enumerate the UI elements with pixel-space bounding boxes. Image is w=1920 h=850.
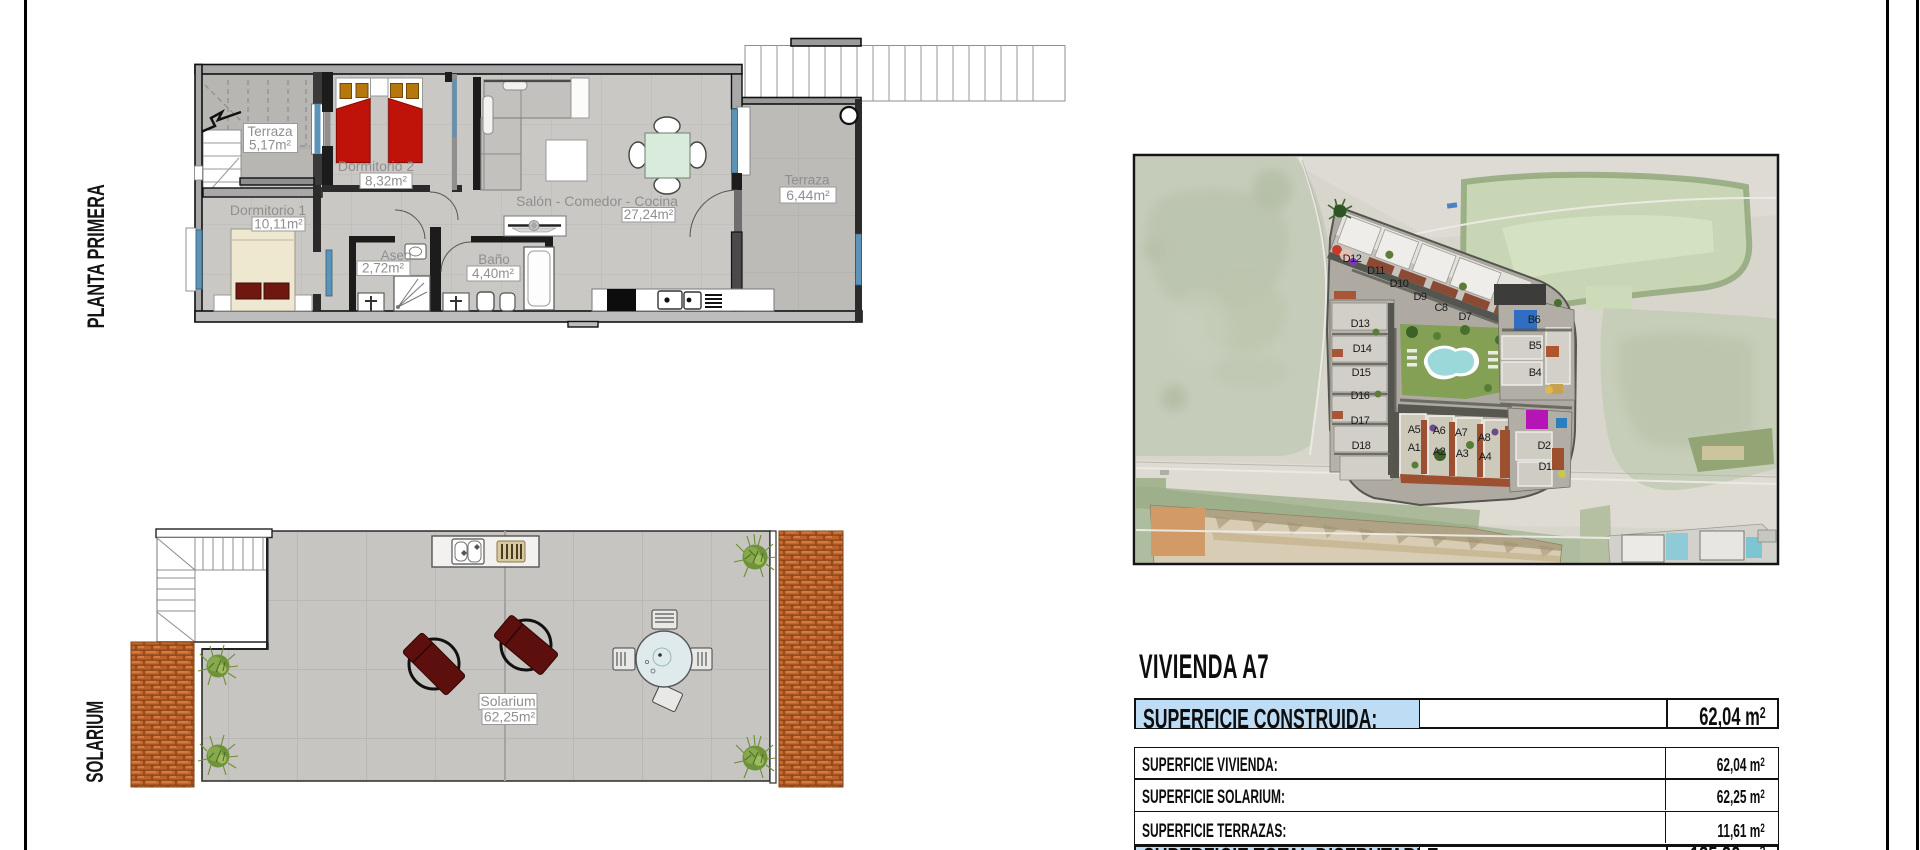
svg-text:D13: D13: [1351, 318, 1370, 330]
svg-text:A5: A5: [1408, 424, 1421, 436]
svg-text:A1: A1: [1408, 442, 1421, 454]
svg-text:D17: D17: [1351, 415, 1370, 427]
svg-text:B6: B6: [1528, 314, 1541, 326]
svg-text:A7: A7: [1455, 427, 1468, 439]
svg-text:A4: A4: [1479, 451, 1492, 463]
svg-text:D18: D18: [1352, 440, 1371, 452]
svg-text:B4: B4: [1529, 367, 1542, 379]
svg-text:A2: A2: [1433, 446, 1446, 458]
svg-text:A6: A6: [1433, 425, 1446, 437]
svg-text:Solarium: Solarium: [480, 693, 535, 709]
svg-text:D9: D9: [1413, 291, 1426, 303]
svg-text:D14: D14: [1353, 343, 1372, 355]
svg-text:D2: D2: [1537, 440, 1550, 452]
svg-text:5,17m²: 5,17m²: [249, 138, 292, 153]
svg-text:10,11m²: 10,11m²: [254, 217, 303, 232]
svg-text:B5: B5: [1529, 340, 1542, 352]
svg-text:A8: A8: [1478, 432, 1491, 444]
svg-text:D10: D10: [1390, 278, 1409, 290]
svg-text:D7: D7: [1458, 311, 1471, 323]
svg-text:D1: D1: [1538, 461, 1551, 473]
svg-text:6,44m²: 6,44m²: [786, 187, 830, 203]
svg-text:D12: D12: [1343, 253, 1362, 265]
svg-text:A3: A3: [1456, 448, 1469, 460]
svg-text:27,24m²: 27,24m²: [624, 207, 674, 222]
svg-text:4,40m²: 4,40m²: [472, 266, 515, 281]
svg-text:C8: C8: [1434, 302, 1447, 314]
svg-text:D15: D15: [1352, 367, 1371, 379]
svg-text:8,32m²: 8,32m²: [365, 174, 408, 189]
svg-text:Dormitorio 2: Dormitorio 2: [338, 158, 414, 174]
svg-text:D11: D11: [1367, 265, 1385, 277]
svg-text:Terraza: Terraza: [784, 173, 830, 188]
svg-text:Baño: Baño: [478, 252, 510, 267]
svg-text:D16: D16: [1351, 390, 1370, 402]
svg-text:2,72m²: 2,72m²: [362, 261, 405, 276]
svg-text:62,25m²: 62,25m²: [484, 709, 536, 725]
